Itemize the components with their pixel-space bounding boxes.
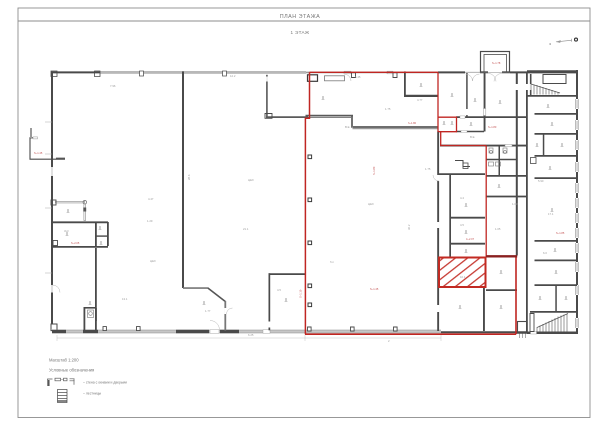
svg-text:Условные обозначения: Условные обозначения [49, 368, 94, 373]
svg-text:1 ЭТАЖ: 1 ЭТАЖ [291, 30, 310, 35]
svg-text:– стена с окнами и дверьми: – стена с окнами и дверьми [83, 381, 127, 385]
svg-text:13.1: 13.1 [122, 297, 128, 301]
svg-text:4.4: 4.4 [460, 196, 464, 200]
svg-text:ЦЕХ: ЦЕХ [248, 178, 254, 182]
svg-text:S~1.45: S~1.45 [370, 287, 379, 291]
svg-text:12.2: 12.2 [230, 74, 236, 78]
svg-text:ЦЕХ: ЦЕХ [368, 202, 374, 206]
svg-text:7.96: 7.96 [110, 84, 116, 88]
svg-text:S~1.10: S~1.10 [299, 289, 303, 298]
svg-text:4.5: 4.5 [277, 288, 281, 292]
svg-text:4.5: 4.5 [460, 223, 464, 227]
svg-text:1.29: 1.29 [147, 219, 153, 223]
svg-text:1.05: 1.05 [495, 227, 501, 231]
svg-text:5.90: 5.90 [538, 179, 544, 183]
svg-text:В.Е.: В.Е. [345, 125, 351, 129]
svg-text:S~1.80: S~1.80 [488, 125, 497, 129]
svg-text:S~1.85: S~1.85 [556, 231, 565, 235]
svg-text:17.1: 17.1 [548, 212, 554, 216]
svg-text:4~2.07: 4~2.07 [466, 237, 475, 241]
svg-text:1.03: 1.03 [512, 202, 518, 206]
svg-text:В.Е.: В.Е. [470, 135, 476, 139]
svg-text:21.1: 21.1 [243, 227, 249, 231]
svg-text:6.0: 6.0 [543, 251, 547, 255]
svg-text:S~1.78: S~1.78 [492, 61, 501, 65]
svg-text:Масштаб 1:200: Масштаб 1:200 [49, 358, 79, 363]
svg-text:3x3: 3x3 [64, 229, 69, 233]
svg-text:ПЛАН ЭТАЖА: ПЛАН ЭТАЖА [280, 14, 321, 20]
svg-text:S~1.45: S~1.45 [34, 151, 43, 155]
svg-text:4.47: 4.47 [148, 197, 154, 201]
svg-text:1.77: 1.77 [205, 309, 211, 313]
svg-text:S~2.05: S~2.05 [71, 241, 80, 245]
svg-text:h~1.80: h~1.80 [408, 121, 417, 125]
svg-text:S~1.80: S~1.80 [372, 166, 376, 175]
svg-text:6.25: 6.25 [248, 333, 254, 337]
svg-text:28.6: 28.6 [187, 174, 191, 180]
svg-text:ЦЕХ: ЦЕХ [150, 259, 156, 263]
svg-text:1.75: 1.75 [385, 107, 391, 111]
svg-text:4.77: 4.77 [417, 98, 423, 102]
svg-text:36.2: 36.2 [407, 224, 411, 230]
svg-text:– лестницы: – лестницы [83, 392, 102, 396]
svg-text:5.45: 5.45 [355, 75, 361, 79]
svg-text:10.1: 10.1 [460, 275, 466, 279]
svg-text:1.75: 1.75 [425, 167, 431, 171]
svg-text:б.п: б.п [330, 260, 334, 264]
